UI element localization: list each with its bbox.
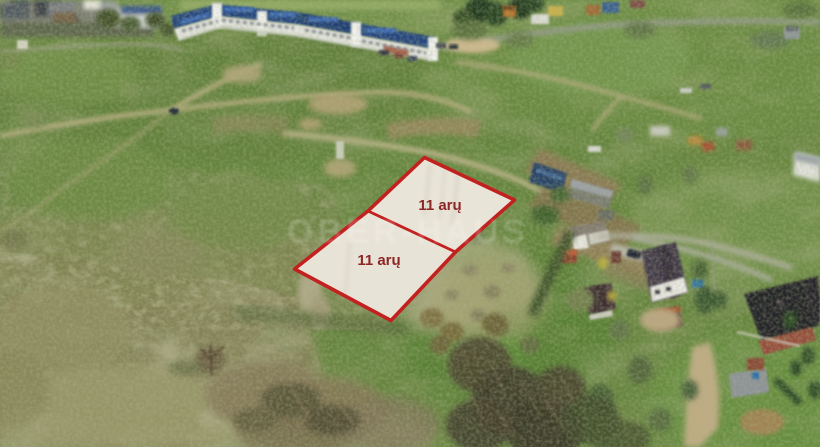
svg-text:11 arų: 11 arų [418, 197, 461, 214]
svg-text:11 arų: 11 arų [357, 252, 400, 269]
svg-text:OBER-HAUS: OBER-HAUS [287, 213, 529, 251]
